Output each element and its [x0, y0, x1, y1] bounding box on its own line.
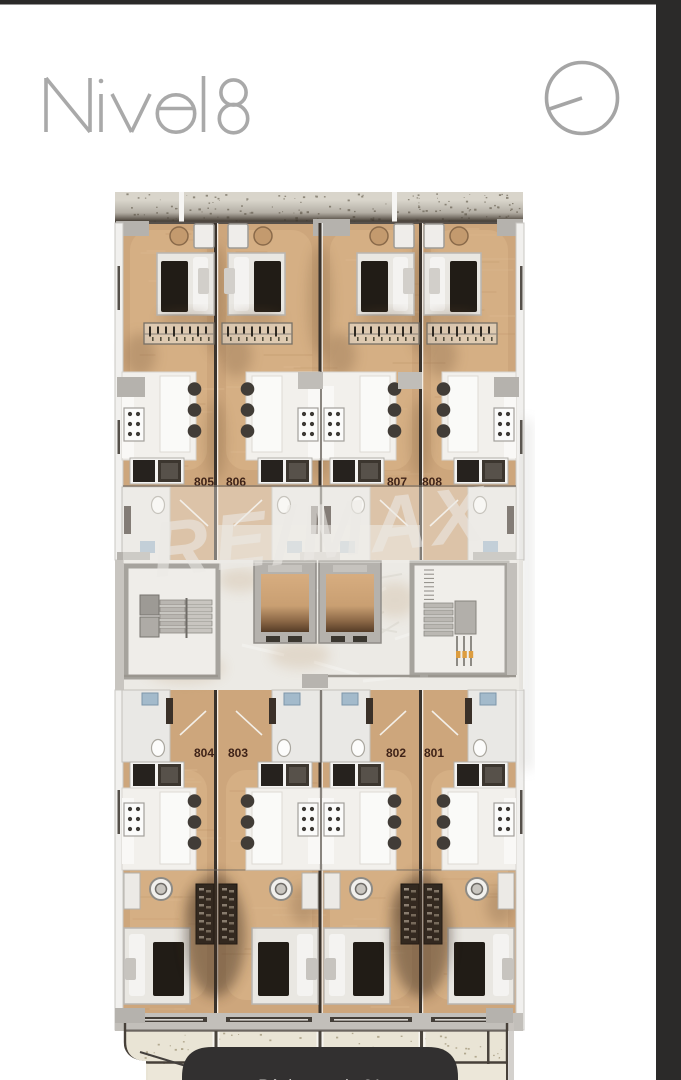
svg-text:802: 802: [386, 746, 406, 760]
svg-text:806: 806: [226, 475, 246, 489]
svg-text:804: 804: [194, 746, 214, 760]
svg-text:805: 805: [194, 475, 214, 489]
svg-text:Página de 21: Página de 21: [258, 1076, 382, 1080]
svg-text:803: 803: [228, 746, 248, 760]
svg-text:801: 801: [424, 746, 444, 760]
